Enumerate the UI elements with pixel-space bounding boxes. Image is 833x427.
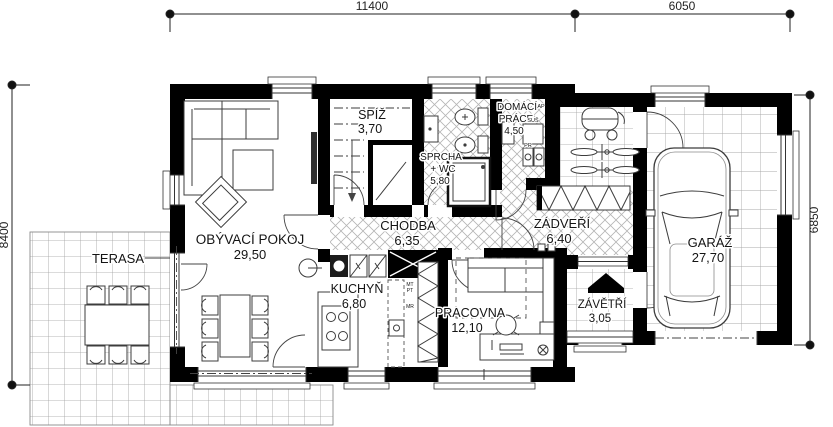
label-pt: PT bbox=[407, 288, 413, 294]
garage-door bbox=[655, 331, 757, 345]
label-ap: AP bbox=[537, 104, 545, 110]
desk bbox=[480, 334, 554, 360]
window-living-left bbox=[163, 171, 185, 209]
room-label-sprcha: SPRCHA bbox=[420, 152, 462, 163]
room-label-zavetri: ZÁVĚTŘÍ bbox=[578, 298, 627, 311]
side-table bbox=[540, 322, 554, 334]
terrace-floor-extension bbox=[170, 385, 333, 425]
dim-height-left: 8400 bbox=[0, 221, 11, 248]
terrace-door-left bbox=[170, 246, 185, 354]
room-area-garaz: 27,70 bbox=[692, 250, 725, 265]
label-mr: MR bbox=[406, 304, 414, 310]
window-study-bottom bbox=[434, 367, 535, 389]
room-label-kuchyn: KUCHYŇ bbox=[331, 281, 384, 296]
room-label-zadveri: ZÁDVEŘÍ bbox=[534, 216, 591, 231]
room-label-obyvaci-pokoj: OBÝVACÍ POKOJ bbox=[196, 232, 305, 247]
car-mirror-right bbox=[729, 210, 738, 216]
window-living-top bbox=[268, 77, 316, 99]
room-label-spiz: SPÍŽ bbox=[358, 107, 386, 122]
dryer bbox=[523, 124, 543, 144]
living-room-furniture bbox=[184, 101, 322, 361]
floor-plan-drawing: TERASA OBÝVACÍ POKOJ 29,50 SPÍŽ 3,70 SPR… bbox=[0, 0, 833, 427]
door-pantry bbox=[334, 175, 364, 205]
car-mirror-left bbox=[646, 210, 655, 216]
sofa-back bbox=[468, 258, 554, 268]
room-label-domaci-prace: DOMÁCÍ bbox=[497, 100, 537, 113]
dishwasher bbox=[389, 320, 404, 336]
window-utility-top bbox=[486, 77, 536, 99]
window-garage-right bbox=[777, 131, 799, 219]
sliding-door-terrace bbox=[190, 367, 312, 389]
dim-height-right: 6850 bbox=[807, 206, 821, 233]
pantry-arrow bbox=[348, 193, 356, 202]
sofa-arm bbox=[543, 258, 554, 322]
dim-width-garage: 6050 bbox=[669, 0, 696, 13]
bidet-tank bbox=[478, 136, 488, 153]
room-area-pracovna: 12,10 bbox=[451, 321, 482, 335]
kitchen-furniture bbox=[318, 255, 438, 367]
room-area-spiz: 3,70 bbox=[358, 122, 382, 136]
dim-width-main: 11400 bbox=[356, 0, 389, 13]
room-label-pracovna: PRACOVNA bbox=[435, 306, 506, 320]
tv bbox=[311, 132, 317, 184]
room-area-zavetri: 3,05 bbox=[589, 313, 611, 325]
label-sus: SUŠ bbox=[527, 117, 539, 124]
room-area-chodba: 6,35 bbox=[394, 233, 419, 248]
room-label-chodba: CHODBA bbox=[380, 218, 436, 233]
label-pr: PR bbox=[524, 143, 532, 149]
room-area-obyvaci-pokoj: 29,50 bbox=[234, 247, 267, 262]
shoe-bench bbox=[538, 244, 545, 251]
front-door bbox=[578, 257, 628, 266]
pantry-details bbox=[348, 140, 406, 202]
room-label-sprcha-2: + WC bbox=[430, 164, 455, 175]
window-kitchen-bottom bbox=[344, 367, 389, 389]
room-area-domaci-prace: 4,50 bbox=[504, 126, 524, 137]
room-label-garaz: GARÁŽ bbox=[688, 235, 733, 250]
wc-tank bbox=[478, 108, 488, 125]
room-area-zadveri: 6,40 bbox=[546, 231, 571, 246]
floor-plan: TERASA OBÝVACÍ POKOJ 29,50 SPÍŽ 3,70 SPR… bbox=[0, 0, 833, 427]
room-area-sprcha: 5,80 bbox=[430, 176, 450, 187]
room-area-kuchyn: 6,80 bbox=[342, 297, 366, 311]
window-shower-top bbox=[428, 77, 480, 99]
coffee-table bbox=[233, 150, 273, 190]
terrace-table bbox=[85, 305, 149, 345]
door-living-kitchen bbox=[273, 335, 305, 367]
dining-table bbox=[220, 295, 250, 357]
room-label-terasa: TERASA bbox=[92, 251, 144, 266]
window-garage-top bbox=[651, 86, 709, 107]
